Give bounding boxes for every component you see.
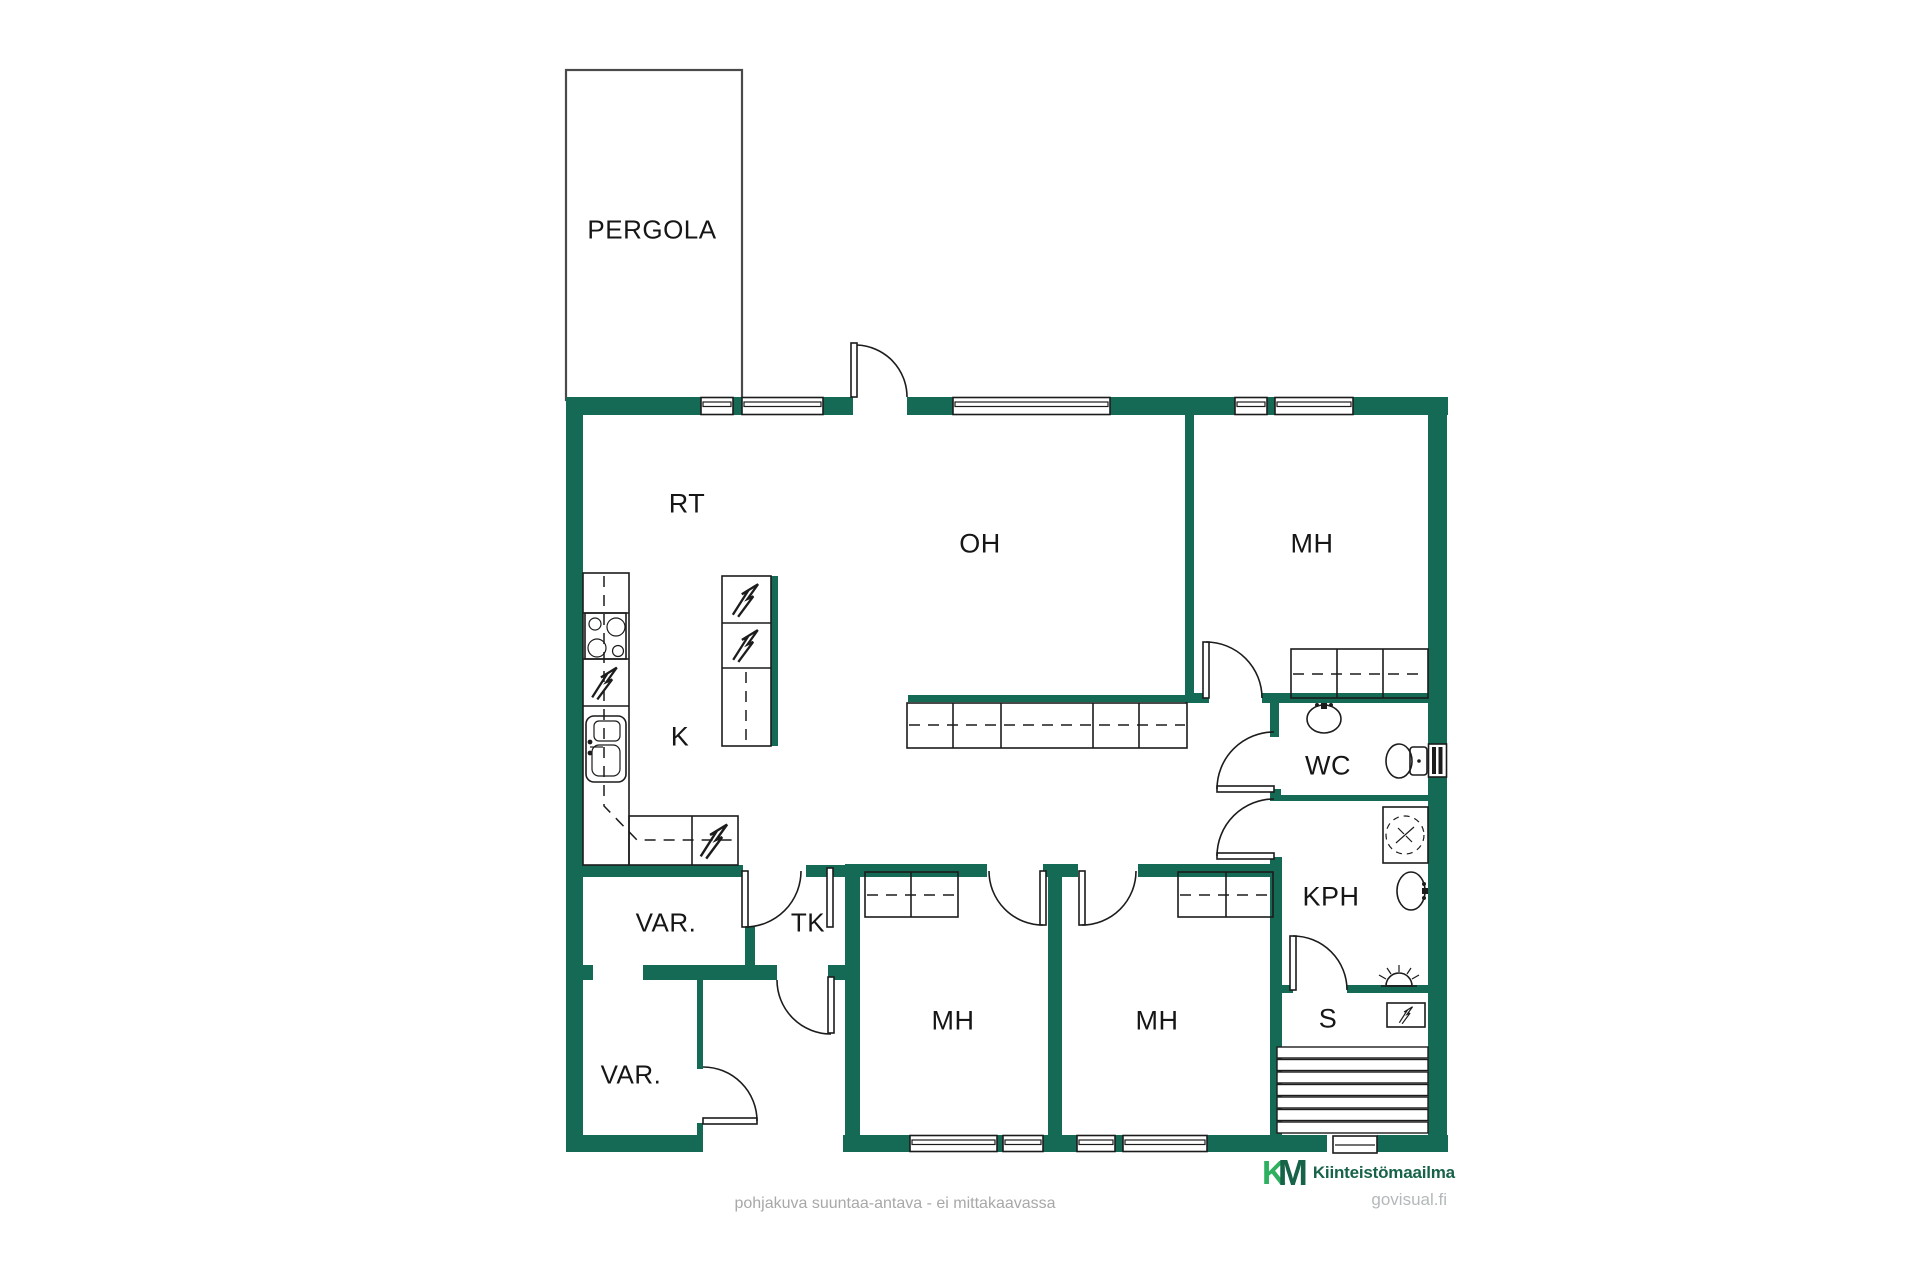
window-icon <box>1235 398 1267 415</box>
window-icon <box>1003 1136 1043 1152</box>
room-label-wc: WC <box>1305 751 1351 782</box>
kph-door-icon <box>1217 799 1274 859</box>
room-label-tk: TK <box>791 908 825 939</box>
wardrobe-icon <box>1178 872 1273 917</box>
open-leaf-icon <box>827 868 833 927</box>
km-logo: K M Kiinteistömaailma <box>1262 1152 1455 1194</box>
disclaimer-caption: pohjakuva suuntaa-antava - ei mittakaava… <box>734 1195 1055 1213</box>
km-logo-m: M <box>1278 1152 1308 1194</box>
kitchen-fixtures <box>583 573 1187 865</box>
window-icon <box>953 398 1110 415</box>
window-icon <box>1123 1136 1207 1152</box>
room-label-pergola: PERGOLA <box>587 215 716 246</box>
mh-top-door-icon <box>1203 642 1262 698</box>
window-icon <box>701 398 733 415</box>
room-label-s: S <box>1319 1004 1338 1035</box>
shower-icon <box>1383 807 1428 863</box>
wc-door-icon <box>1217 732 1274 792</box>
room-label-var-lower: VAR. <box>601 1060 662 1091</box>
room-label-mh-left: MH <box>932 1006 975 1037</box>
room-label-oh: OH <box>959 529 1001 560</box>
mh2-door-icon <box>1079 871 1136 925</box>
washbasin-icon <box>1397 872 1428 910</box>
floorplan-page: PERGOLA RT OH MH K WC KPH VAR. TK MH MH … <box>0 0 1920 1280</box>
front-door-icon <box>851 343 907 397</box>
govisual-site-text: govisual.fi <box>1371 1190 1447 1210</box>
electrical-icon <box>733 630 758 662</box>
counter-centerline <box>604 576 736 840</box>
electrical-icon <box>733 584 758 617</box>
room-label-k: K <box>671 722 690 753</box>
electrical-icon <box>701 825 727 859</box>
stove-icon <box>585 613 626 659</box>
floorplan-drawing <box>0 0 1920 1280</box>
room-label-var-upper: VAR. <box>636 908 697 939</box>
wardrobe-icon <box>865 872 958 917</box>
sauna-benches-icon <box>1277 1047 1428 1133</box>
room-label-mh-top: MH <box>1291 529 1334 560</box>
km-brand-text: Kiinteistömaailma <box>1313 1163 1455 1183</box>
wc-window-icon <box>1429 744 1447 777</box>
sauna-door-icon <box>1290 936 1347 990</box>
electrical-panel-icon <box>1387 1003 1425 1027</box>
room-label-kph: KPH <box>1302 882 1359 913</box>
window-icon <box>742 398 823 415</box>
window-icon <box>1077 1136 1115 1152</box>
room-label-rt: RT <box>669 489 706 520</box>
hall-door-icon <box>777 977 834 1034</box>
room-label-mh-right: MH <box>1136 1006 1179 1037</box>
toilet-icon <box>1386 744 1427 778</box>
var-door-icon <box>703 1067 757 1124</box>
bathroom-fixtures <box>1307 703 1428 910</box>
mh1-door-icon <box>989 871 1046 925</box>
sideboard-row <box>907 703 1187 748</box>
window-icon <box>1275 398 1353 415</box>
kitchen-counter <box>583 573 629 865</box>
sink-icon <box>586 716 626 782</box>
sauna-hatch-icon <box>1327 1135 1377 1153</box>
sauna-lamp-icon <box>1379 965 1419 986</box>
wardrobe-icon <box>1291 649 1428 698</box>
doors-layer <box>703 343 1347 1124</box>
washbasin-icon <box>1307 703 1341 733</box>
window-icon <box>910 1136 997 1152</box>
